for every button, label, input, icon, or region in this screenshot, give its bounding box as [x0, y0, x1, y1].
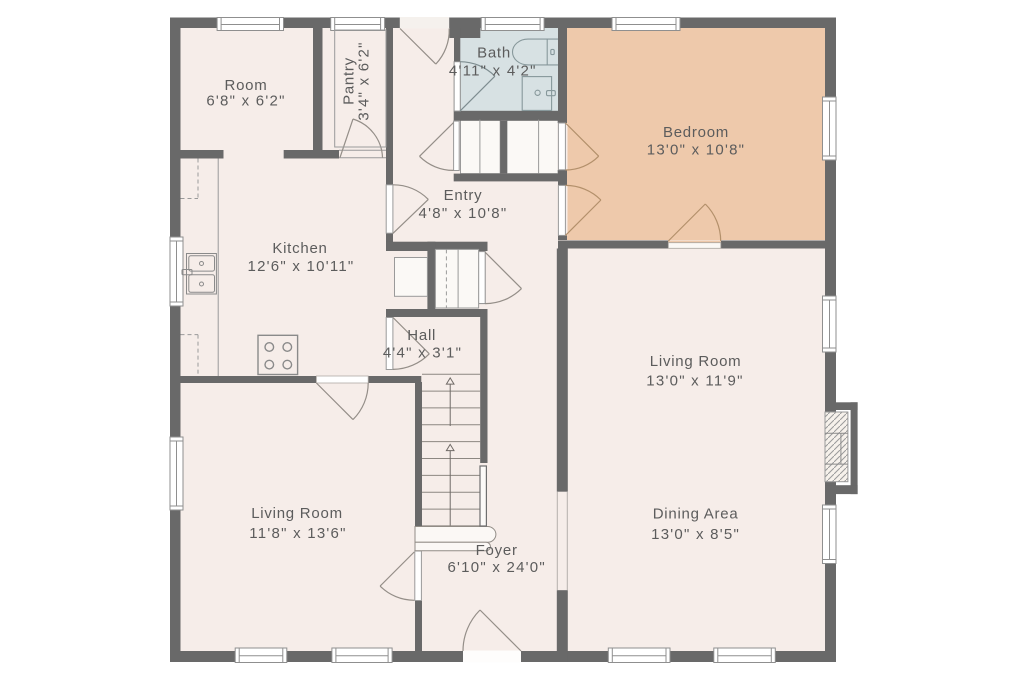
svg-text:3'4" x 6'2": 3'4" x 6'2" [356, 41, 373, 120]
svg-text:Kitchen: Kitchen [272, 240, 327, 257]
svg-text:Entry: Entry [444, 187, 483, 204]
svg-text:Living Room: Living Room [650, 353, 742, 370]
svg-text:Bath: Bath [477, 45, 511, 62]
svg-text:Hall: Hall [407, 327, 436, 344]
svg-text:11'8" x 13'6": 11'8" x 13'6" [249, 525, 346, 542]
svg-text:4'11" x 4'2": 4'11" x 4'2" [449, 63, 537, 80]
svg-text:13'0" x 11'9": 13'0" x 11'9" [646, 373, 743, 390]
svg-text:12'6" x 10'11": 12'6" x 10'11" [248, 258, 355, 275]
svg-text:6'8" x 6'2": 6'8" x 6'2" [206, 93, 285, 110]
svg-text:4'4" x 3'1": 4'4" x 3'1" [383, 345, 462, 362]
svg-text:4'8" x 10'8": 4'8" x 10'8" [419, 205, 508, 222]
svg-text:Foyer: Foyer [476, 542, 518, 559]
svg-text:Dining Area: Dining Area [653, 506, 739, 523]
svg-text:6'10" x 24'0": 6'10" x 24'0" [447, 559, 546, 576]
svg-text:13'0" x 10'8": 13'0" x 10'8" [647, 142, 746, 159]
svg-text:Bedroom: Bedroom [663, 124, 729, 141]
svg-text:Room: Room [224, 77, 267, 94]
svg-text:13'0" x 8'5": 13'0" x 8'5" [651, 526, 740, 543]
svg-text:Living Room: Living Room [251, 505, 343, 522]
